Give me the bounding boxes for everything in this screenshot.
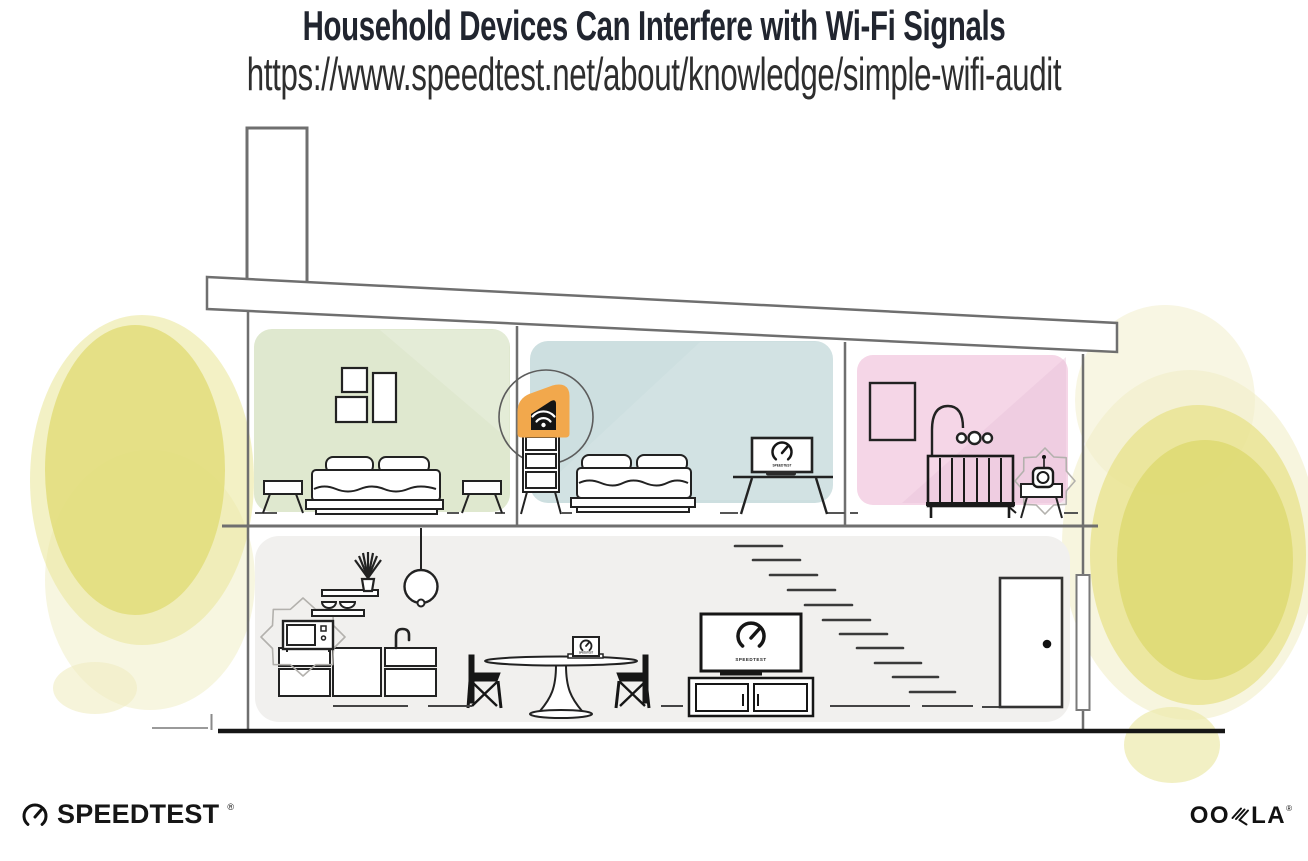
dining-laptop-label: SPEEDTEST <box>579 652 594 655</box>
microwave-icon <box>283 621 333 652</box>
ookla-wordmark-left: OO <box>1190 802 1230 830</box>
ookla-logo: OO LA ® <box>1190 802 1292 830</box>
front-door <box>1000 578 1062 707</box>
page-title: Household Devices Can Interfere with Wi-… <box>196 2 1112 50</box>
house-illustration: SPEEDTEST <box>0 0 1308 861</box>
page-url: https://www.speedtest.net/about/knowledg… <box>209 48 1098 100</box>
desk-laptop-label: SPEEDTEST <box>773 464 792 468</box>
foliage-left <box>30 315 255 714</box>
speedtest-trademark: ® <box>227 802 234 812</box>
speedtest-wordmark: SPEEDTEST <box>57 799 219 830</box>
doorknob-icon <box>1043 640 1052 649</box>
ookla-k-icon <box>1231 807 1250 826</box>
chimney <box>247 128 307 282</box>
speedtest-gauge-logo-icon <box>20 800 50 830</box>
tv-on-console: SPEEDTEST <box>689 614 813 716</box>
ookla-trademark: ® <box>1286 804 1292 813</box>
dining-laptop-icon: SPEEDTEST <box>568 637 603 658</box>
wifi-router <box>521 388 566 434</box>
foliage-right <box>1062 305 1308 783</box>
kitchen-cabinets <box>279 648 436 696</box>
downspout <box>1077 575 1090 710</box>
speedtest-logo: SPEEDTEST ® <box>20 799 233 830</box>
ookla-wordmark-right: LA <box>1251 802 1286 830</box>
tv-label: SPEEDTEST <box>735 657 766 662</box>
